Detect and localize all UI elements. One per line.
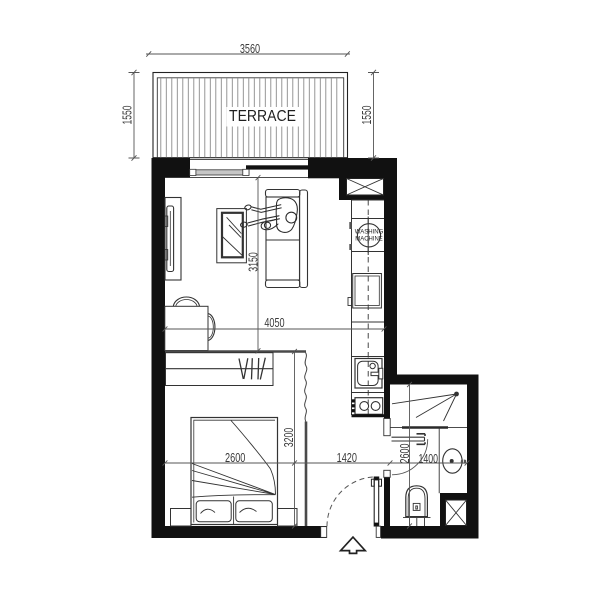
svg-text:4050: 4050 (264, 316, 284, 330)
svg-text:2600: 2600 (225, 451, 245, 465)
svg-text:3150: 3150 (247, 252, 261, 272)
svg-text:1420: 1420 (337, 451, 357, 465)
svg-text:3200: 3200 (282, 428, 296, 448)
svg-text:MACHINE: MACHINE (355, 235, 383, 242)
svg-text:2600: 2600 (398, 444, 412, 464)
svg-text:TERRACE: TERRACE (229, 108, 296, 125)
svg-text:1550: 1550 (121, 106, 135, 125)
svg-text:3560: 3560 (240, 42, 260, 56)
svg-text:1400: 1400 (419, 452, 439, 466)
svg-text:1550: 1550 (360, 106, 374, 125)
